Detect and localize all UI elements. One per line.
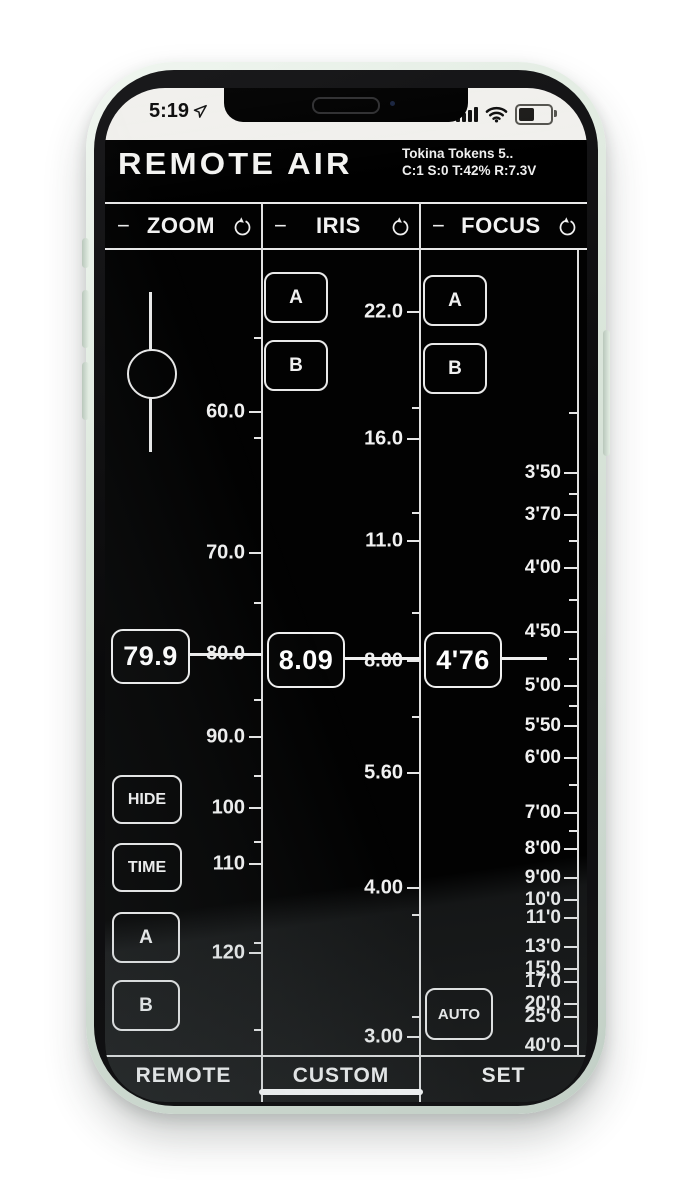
focus-scale-tick bbox=[569, 493, 577, 495]
tab-set[interactable]: SET bbox=[420, 1063, 587, 1089]
focus-scale-label: 25'0 bbox=[525, 1006, 561, 1028]
focus-scale-tick bbox=[564, 1045, 577, 1047]
focus-scale-label: 40'0 bbox=[525, 1035, 561, 1057]
zoom-value-indicator-line bbox=[186, 653, 262, 656]
focus-scale-tick bbox=[564, 514, 577, 516]
focus-scale-tick bbox=[564, 917, 577, 919]
focus-scale-label: 6'00 bbox=[525, 747, 561, 769]
focus-scale-tick bbox=[564, 899, 577, 901]
focus-scale-tick bbox=[564, 812, 577, 814]
focus-scale-tick bbox=[564, 981, 577, 983]
focus-scale-label: 4'00 bbox=[525, 557, 561, 579]
zoom-preset-b-button[interactable]: B bbox=[112, 980, 180, 1031]
autofocus-button[interactable]: AUTO bbox=[425, 988, 493, 1040]
iris-current-value: 8.09 bbox=[267, 632, 345, 688]
volume-down-button bbox=[82, 362, 89, 420]
focus-scale-label: 8'00 bbox=[525, 838, 561, 860]
focus-scale-label: 7'00 bbox=[525, 802, 561, 824]
tab-custom[interactable]: CUSTOM bbox=[262, 1063, 420, 1089]
focus-scale-label: 11'0 bbox=[526, 907, 561, 929]
focus-scale-tick bbox=[569, 658, 577, 660]
focus-scale-label: 3'50 bbox=[525, 462, 561, 484]
focus-scale-tick bbox=[564, 725, 577, 727]
focus-scale-tick bbox=[564, 968, 577, 970]
focus-scale-label: 17'0 bbox=[525, 971, 561, 993]
focus-preset-a-button[interactable]: A bbox=[423, 275, 487, 326]
focus-scale-tick bbox=[569, 705, 577, 707]
focus-scale-tick bbox=[564, 1003, 577, 1005]
mute-switch bbox=[82, 238, 89, 268]
app-screen: 5:19 bbox=[105, 88, 587, 1102]
focus-scale-label: 5'50 bbox=[525, 715, 561, 737]
focus-current-value: 4'76 bbox=[424, 632, 502, 688]
tab-remote[interactable]: REMOTE bbox=[105, 1063, 262, 1089]
focus-scale-label: 13'0 bbox=[525, 936, 561, 958]
focus-scale-tick bbox=[569, 830, 577, 832]
active-tab-underline bbox=[259, 1089, 423, 1095]
power-button bbox=[603, 330, 610, 456]
focus-scale-tick bbox=[564, 848, 577, 850]
focus-scale-label: 4'50 bbox=[525, 621, 561, 643]
focus-scale-tick bbox=[564, 1016, 577, 1018]
focus-scale-tick bbox=[564, 631, 577, 633]
hide-button[interactable]: HIDE bbox=[112, 775, 182, 824]
phone-frame: 5:19 bbox=[86, 62, 606, 1114]
focus-scale-tick bbox=[564, 567, 577, 569]
focus-scale-tick bbox=[564, 685, 577, 687]
focus-scale-label: 5'00 bbox=[525, 675, 561, 697]
focus-scale-tick bbox=[564, 946, 577, 948]
focus-scale-tick bbox=[569, 599, 577, 601]
focus-value-indicator-line bbox=[498, 657, 547, 660]
zoom-joystick-knob[interactable] bbox=[127, 349, 177, 399]
iris-preset-b-button[interactable]: B bbox=[264, 340, 328, 391]
focus-scale-tick bbox=[564, 757, 577, 759]
zoom-preset-a-button[interactable]: A bbox=[112, 912, 180, 963]
time-button[interactable]: TIME bbox=[112, 843, 182, 892]
focus-preset-b-button[interactable]: B bbox=[423, 343, 487, 394]
focus-scale-tick bbox=[569, 412, 577, 414]
volume-up-button bbox=[82, 290, 89, 348]
focus-scale-label: 9'00 bbox=[525, 867, 561, 889]
iris-value-indicator-line bbox=[341, 657, 420, 660]
focus-scale-tick bbox=[564, 877, 577, 879]
iris-preset-a-button[interactable]: A bbox=[264, 272, 328, 323]
focus-scale-tick bbox=[569, 540, 577, 542]
zoom-current-value: 79.9 bbox=[111, 629, 190, 684]
focus-scale-tick bbox=[564, 472, 577, 474]
focus-scale-label: 3'70 bbox=[525, 504, 561, 526]
focus-scale-tick bbox=[569, 784, 577, 786]
